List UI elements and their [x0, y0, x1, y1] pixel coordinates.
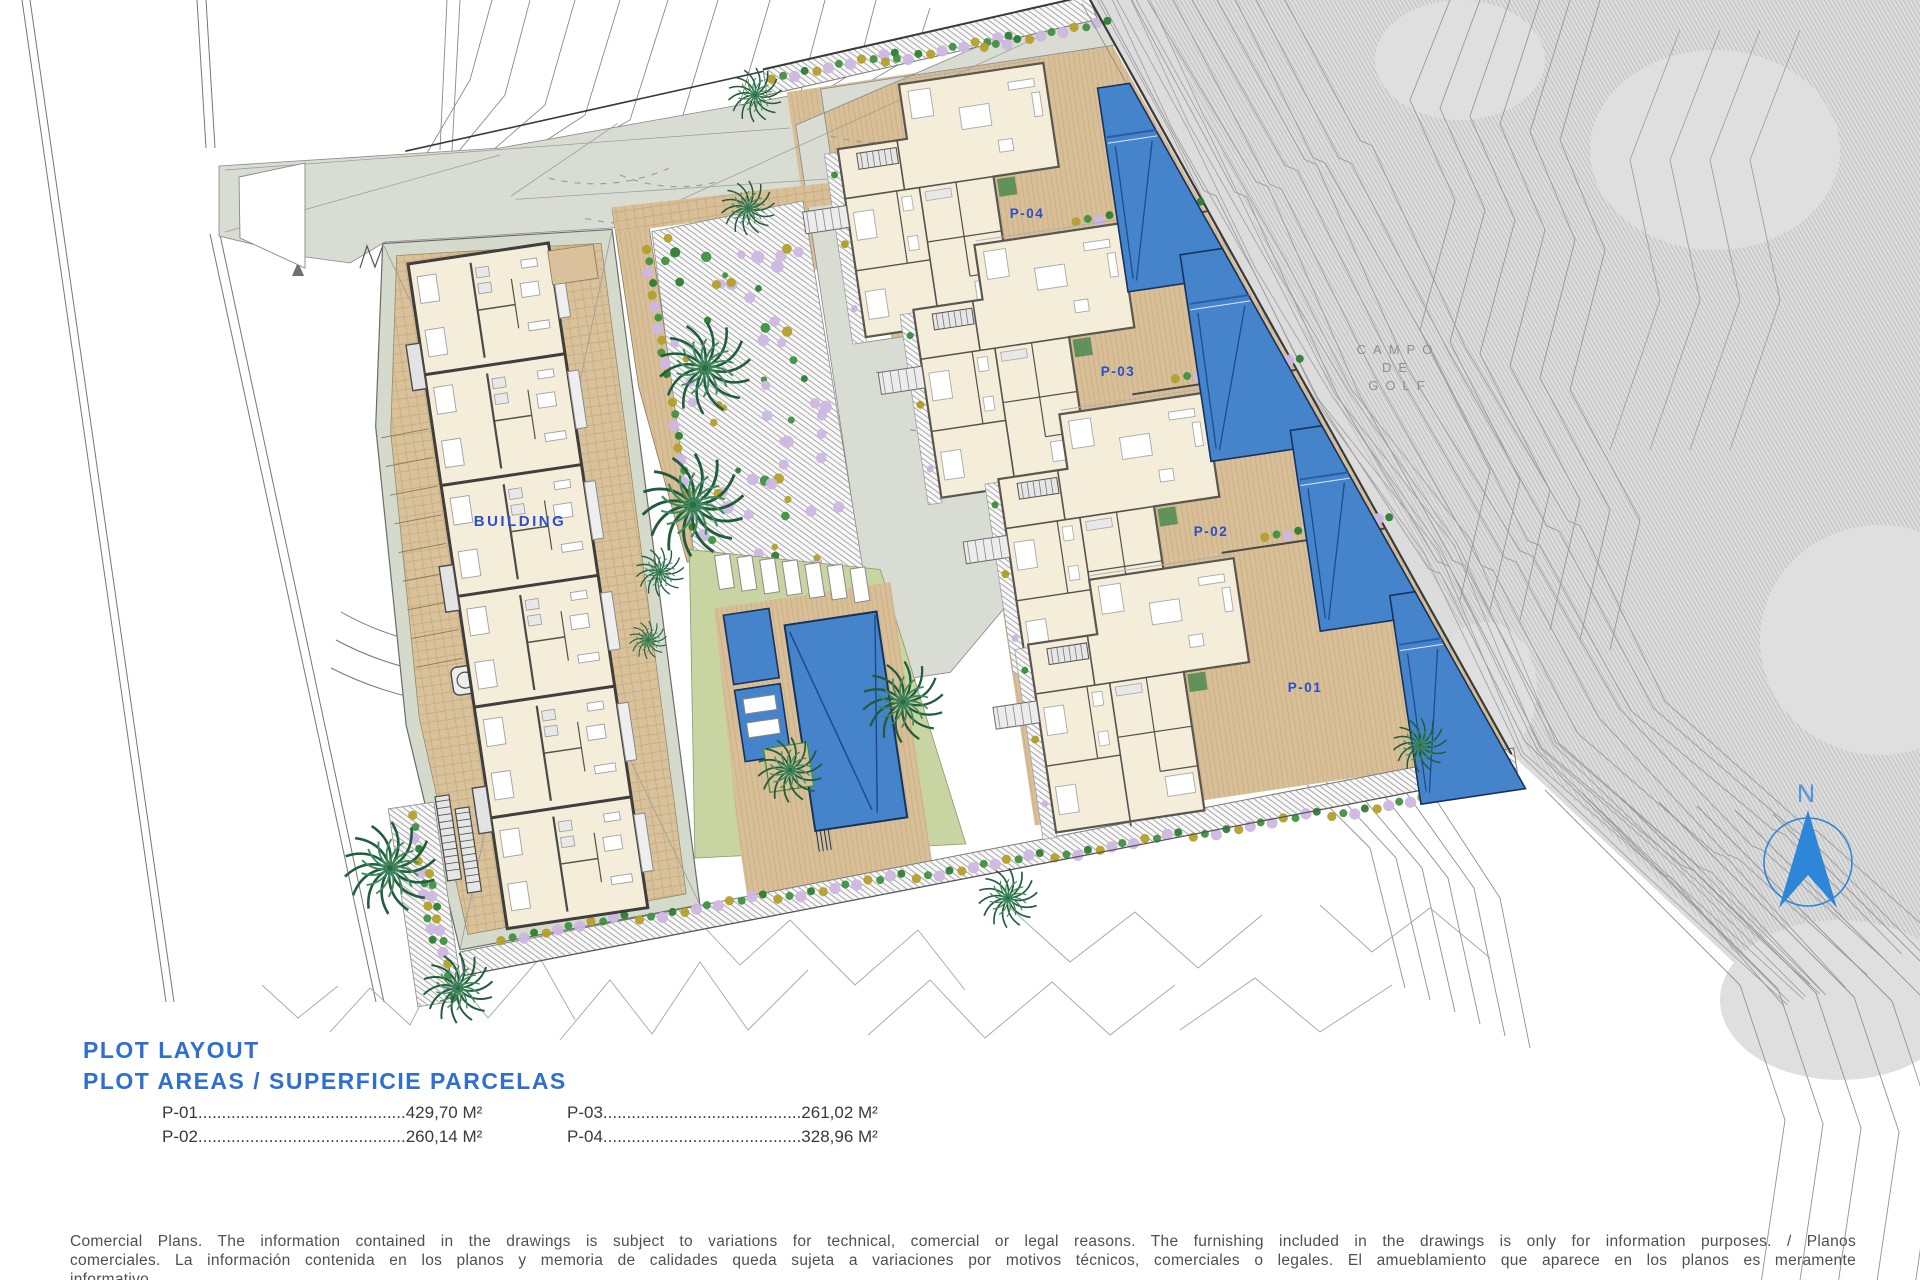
svg-text:P-01..........................: P-01....................................… [162, 1103, 483, 1122]
svg-text:DE: DE [1382, 360, 1414, 375]
svg-text:CAMPO: CAMPO [1357, 342, 1440, 357]
svg-text:BUILDING: BUILDING [474, 513, 567, 530]
svg-text:GOLF: GOLF [1368, 378, 1431, 393]
svg-text:P-01: P-01 [1288, 680, 1323, 695]
svg-text:P-03: P-03 [1101, 364, 1136, 379]
svg-text:P-04: P-04 [1010, 206, 1045, 221]
svg-text:P-02: P-02 [1194, 524, 1229, 539]
svg-text:PLOT LAYOUT: PLOT LAYOUT [83, 1037, 260, 1063]
svg-text:PLOT AREAS / SUPERFICIE PARCEL: PLOT AREAS / SUPERFICIE PARCELAS [83, 1068, 567, 1094]
svg-text:P-04..........................: P-04....................................… [567, 1127, 878, 1146]
svg-text:N: N [1797, 780, 1815, 808]
svg-text:P-03..........................: P-03....................................… [567, 1103, 878, 1122]
svg-text:P-02..........................: P-02....................................… [162, 1127, 483, 1146]
